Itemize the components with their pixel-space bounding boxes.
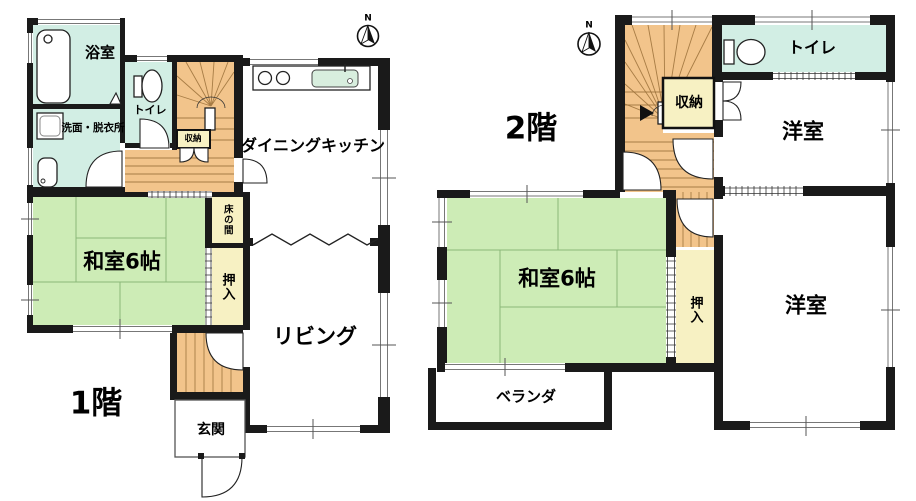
stair1-newel bbox=[205, 108, 215, 130]
room-label-washitsu2: 和室6帖 bbox=[518, 269, 596, 290]
room-label-bathroom: 浴室 bbox=[85, 46, 115, 61]
washbasin-icon bbox=[37, 113, 63, 139]
entrance-door bbox=[202, 457, 242, 497]
compass-n-label: N bbox=[585, 22, 593, 31]
storage2-door bbox=[723, 101, 741, 120]
floor2-plan bbox=[428, 10, 900, 436]
laundry-icon bbox=[38, 158, 57, 187]
room-label-toilet1: トイレ bbox=[134, 105, 167, 116]
room-label-veranda: ベランダ bbox=[496, 390, 556, 405]
floor2-title: 2階 bbox=[505, 114, 558, 145]
room-label-storage2: 収納 bbox=[675, 96, 703, 110]
accordion-partition bbox=[253, 234, 378, 245]
room-label-yoshitsu-north: 洋室 bbox=[782, 122, 824, 143]
room-label-living: リビング bbox=[273, 327, 357, 348]
kitchen-door bbox=[243, 159, 267, 183]
floor1-title: 1階 bbox=[70, 389, 123, 420]
compass-n-label: N bbox=[364, 15, 372, 24]
room-label-toilet2: トイレ bbox=[788, 40, 836, 56]
room-label-washitsu1: 和室6帖 bbox=[83, 252, 161, 273]
room-label-oshiire1: 押入 bbox=[221, 273, 234, 301]
room-label-washroom: 洗面・脱衣所 bbox=[62, 123, 125, 134]
kitchen-counter-icon bbox=[253, 64, 370, 90]
compass-icon bbox=[358, 25, 379, 47]
room-label-yoshitsu-south: 洋室 bbox=[785, 296, 827, 317]
floor-plan: 浴室 トイレ 洗面・脱衣所 収納 ダイニングキッチン 床の間 和室6帖 押入 リ… bbox=[0, 0, 916, 501]
room-label-tokonoma: 床の間 bbox=[222, 204, 232, 236]
compass-icon bbox=[578, 32, 600, 55]
room-label-storage1: 収納 bbox=[184, 135, 201, 144]
room-label-dining-kitchen: ダイニングキッチン bbox=[241, 138, 385, 154]
toilet2-icon bbox=[724, 40, 765, 65]
room-label-oshiire2: 押入 bbox=[689, 296, 702, 324]
bathtub-icon bbox=[37, 30, 70, 103]
room-label-genkan: 玄関 bbox=[197, 423, 225, 437]
storage2-door bbox=[723, 82, 741, 101]
